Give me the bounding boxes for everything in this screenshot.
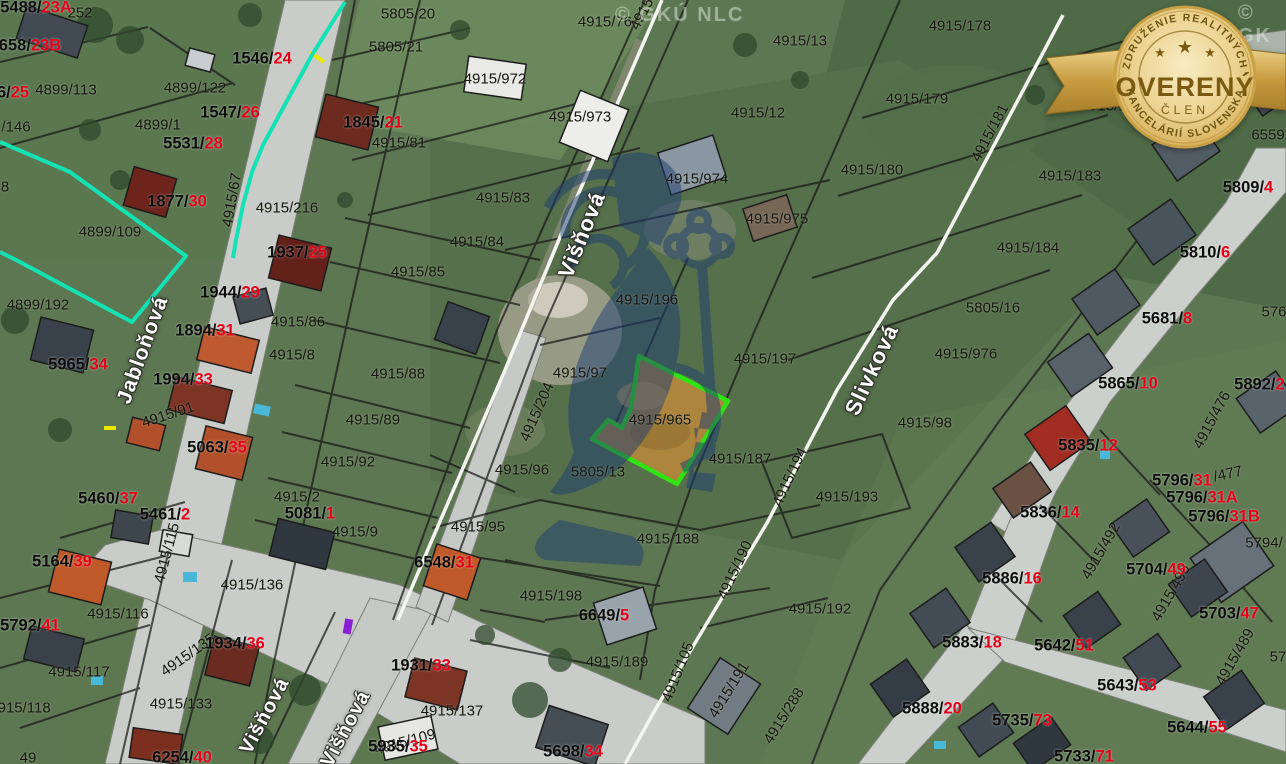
map-imagery-layer <box>0 0 1286 764</box>
satellite-cadastral-map[interactable]: 5805/205805/214915/764915/134915/124915/… <box>0 0 1286 764</box>
